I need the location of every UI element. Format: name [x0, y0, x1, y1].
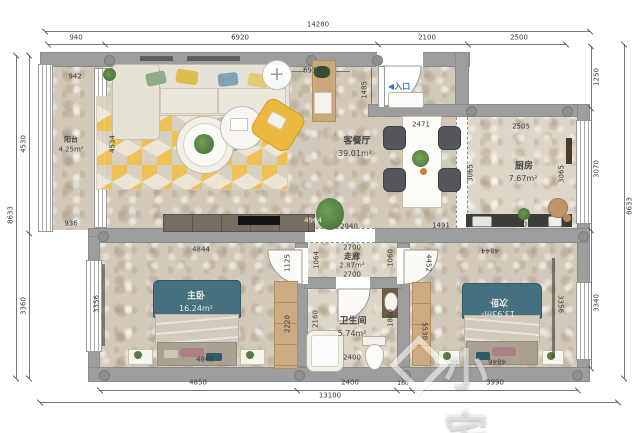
dining-chair [383, 126, 406, 150]
dim-label: 4844 [481, 247, 499, 254]
dim-label: 940 [69, 35, 82, 42]
dining-plant [412, 150, 429, 167]
room-area-balcony: 4.25m² [58, 147, 83, 154]
tv [238, 216, 280, 225]
kitchen-window [576, 120, 592, 224]
pillow [175, 69, 199, 86]
nightstand-plant [246, 351, 254, 359]
column-marker [466, 106, 477, 117]
nightstand-plant [134, 351, 142, 359]
dim-label: 8633 [8, 206, 15, 224]
corner-plant [103, 68, 116, 81]
dim-label: 2940 [340, 224, 358, 231]
dim-label: 1125 [285, 254, 292, 272]
dim-label: 2100 [418, 35, 436, 42]
table-plant [194, 134, 214, 154]
dim-label: 4850 [189, 380, 207, 387]
room-area-kitchen: 7.67m² [509, 175, 538, 183]
dim-label: 1860 [388, 309, 395, 327]
desk-paper [314, 92, 332, 114]
room-label-hallway: 走廊 [344, 253, 360, 261]
magazine [230, 118, 248, 131]
dim-label: 2160 [313, 310, 320, 328]
dim-label: 1250 [594, 68, 601, 86]
dim-label: 942 [68, 74, 81, 81]
dim-label: 13100 [319, 393, 341, 400]
dim-label: 4534 [110, 135, 117, 153]
balcony-window [38, 64, 53, 232]
pillow [164, 350, 178, 358]
room-area-bathroom: 5.74m² [338, 330, 367, 338]
zoom-in-button[interactable]: + [262, 60, 292, 90]
dim-label: 6918 [303, 68, 321, 75]
column-marker [578, 231, 589, 242]
dim-label: 8633 [627, 197, 634, 215]
dim-label: 3356 [94, 295, 101, 313]
dim-label: 3070 [594, 160, 601, 178]
counter-plant [518, 208, 530, 220]
dim-label: 1064 [314, 251, 321, 269]
curtain [552, 258, 555, 358]
entrance-label: ◀入口 [388, 83, 410, 91]
dim-label: 2400 [341, 380, 359, 387]
dim-label: 3065 [468, 164, 475, 182]
sofa-cushion [160, 88, 218, 114]
column-marker [98, 231, 109, 242]
entrance-door-leaf [378, 66, 385, 108]
dim-label: 14280 [307, 22, 329, 29]
dim-line [45, 31, 590, 32]
pillow [217, 72, 238, 87]
dining-chair [383, 168, 406, 192]
column-marker [99, 370, 110, 381]
room-label-bathroom: 卫生间 [339, 318, 366, 327]
dim-label: 1485 [362, 81, 369, 99]
column-marker [572, 370, 583, 381]
kitchen-wall-cabinet [566, 138, 572, 164]
column-marker [294, 370, 305, 381]
room-label-master: 主卧 [187, 293, 205, 302]
dining-chair [438, 126, 461, 150]
dim-label: 3356 [557, 295, 564, 313]
dim-label: 2505 [512, 124, 530, 131]
room-label-balcony: 阳台 [64, 137, 78, 144]
dim-label: 936 [64, 221, 77, 228]
second-door-opening [397, 248, 410, 284]
bathroom-door-opening [336, 277, 370, 289]
master-door-opening [295, 248, 308, 284]
kitchen-sink [472, 216, 492, 227]
dim-label: 2471 [412, 122, 430, 129]
room-label-kitchen: 厨房 [515, 163, 533, 172]
wall-shelf-decor [187, 56, 240, 61]
dining-chair [438, 168, 461, 192]
room-label-living: 客餐厅 [343, 138, 370, 147]
entry-cabinet [388, 92, 424, 108]
dim-label: 3065 [559, 165, 566, 183]
dim-label: 1060 [388, 249, 395, 267]
nightstand-plant [443, 352, 451, 360]
room-area-master: 16.24m² [179, 305, 213, 313]
dim-label: 6920 [231, 35, 249, 42]
dining-bowl [420, 168, 427, 175]
dim-label: 2400 [343, 355, 361, 362]
dim-line [29, 55, 30, 378]
room-area-second: 13.93m² [481, 309, 515, 317]
dim-line [591, 46, 592, 368]
dim-label: 4846 [488, 358, 506, 365]
dim-label: 4849 [196, 357, 214, 364]
wall-shelf-decor [140, 56, 173, 61]
room-area-living: 39.01m² [338, 150, 372, 158]
dim-label: 1491 [432, 223, 450, 230]
dim-label: 2700 [343, 272, 361, 279]
column-marker [372, 55, 383, 66]
dim-label: 160 [397, 381, 408, 387]
dim-line [16, 55, 17, 378]
dim-label: 3990 [486, 380, 504, 387]
dim-line [40, 402, 618, 403]
dim-line [48, 44, 566, 45]
entrance-door-opening [377, 52, 423, 67]
second-bedroom-window [576, 282, 592, 360]
room-label-second: 次卧 [490, 297, 508, 306]
dim-label: 5530 [421, 322, 428, 340]
kitchen-decor [563, 214, 571, 222]
dim-label: 2500 [509, 222, 527, 229]
dim-label: 2220 [285, 315, 292, 333]
dim-label: 4530 [21, 135, 28, 153]
column-marker [562, 106, 573, 117]
dim-label: 3340 [594, 294, 601, 312]
dim-label: 2500 [510, 35, 528, 42]
floor-plan: + [0, 0, 640, 433]
pillow [492, 347, 516, 356]
dim-label: 2700 [343, 245, 361, 252]
dim-line [371, 68, 372, 104]
dim-label: 4844 [192, 247, 210, 254]
dim-label: 4452 [425, 254, 432, 272]
dim-label: 3360 [21, 297, 28, 315]
room-area-hallway: 2.87m² [339, 263, 364, 270]
dim-label: 4964 [304, 218, 322, 225]
curtain [102, 264, 105, 346]
